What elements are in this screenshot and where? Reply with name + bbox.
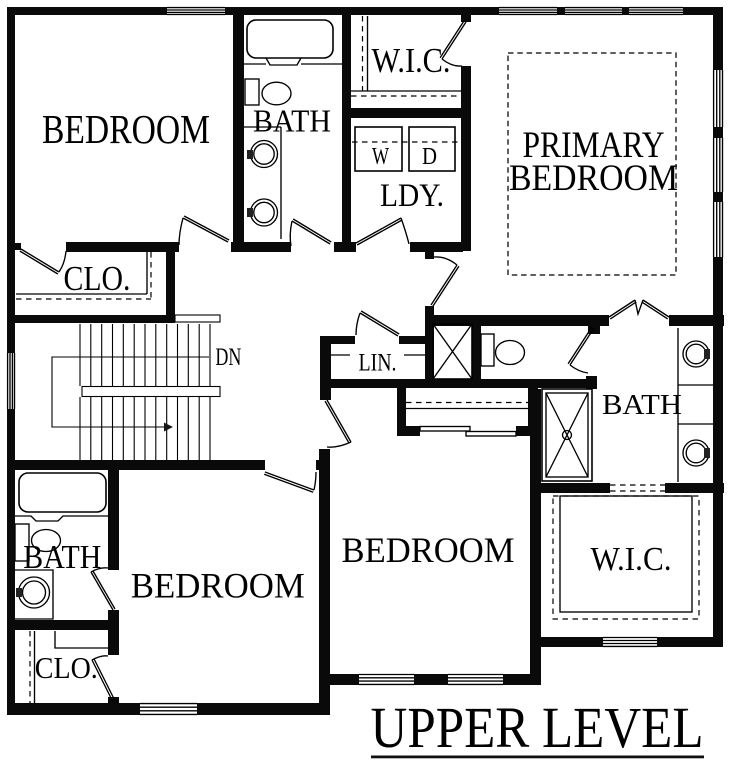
svg-text:UPPER LEVEL: UPPER LEVEL [371,695,704,760]
svg-text:DN: DN [215,344,241,371]
svg-text:CLO.: CLO. [35,650,98,685]
svg-text:LIN.: LIN. [359,350,397,377]
svg-text:BEDROOM: BEDROOM [131,566,305,606]
svg-text:BATH: BATH [602,390,682,421]
svg-text:BEDROOM: BEDROOM [42,106,210,152]
svg-text:W.I.C.: W.I.C. [591,541,672,578]
svg-text:BEDROOM: BEDROOM [509,158,678,199]
svg-text:LDY.: LDY. [380,178,444,214]
svg-text:D: D [422,144,437,170]
svg-text:BEDROOM: BEDROOM [342,530,515,570]
svg-text:W.I.C.: W.I.C. [372,41,451,80]
svg-text:BATH: BATH [253,103,331,139]
svg-text:CLO.: CLO. [64,259,131,298]
svg-text:W: W [372,144,389,170]
